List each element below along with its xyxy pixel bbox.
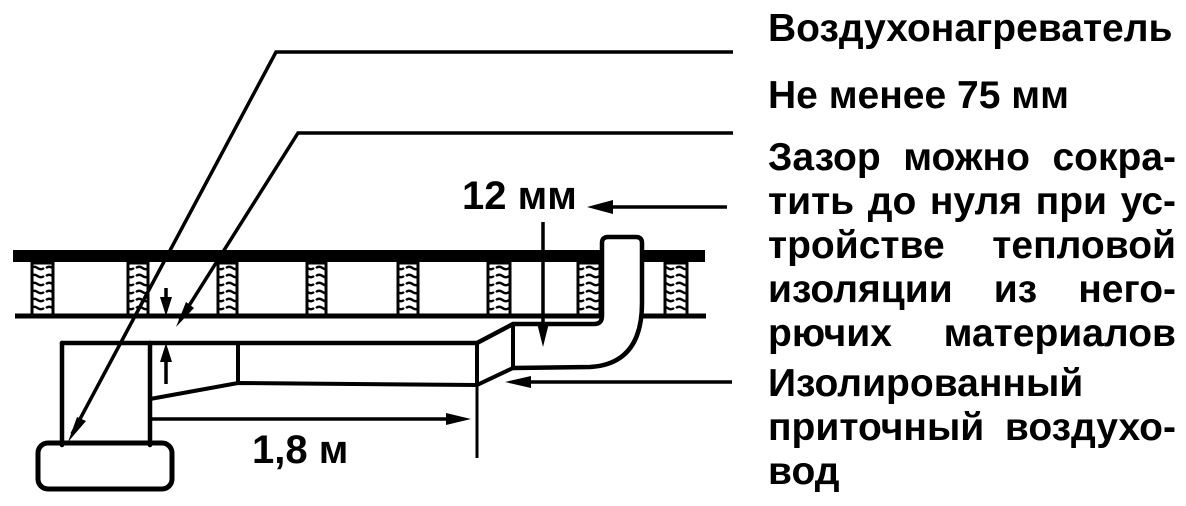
- arrowhead: [68, 417, 86, 442]
- floor-joist: [665, 263, 687, 316]
- label-insulated-duct: Изолированный приточный воздухо- вод: [768, 362, 1176, 494]
- duct-bottom-outline: [150, 368, 513, 399]
- heater-base: [38, 443, 172, 489]
- floor-joist: [32, 263, 53, 316]
- arrowhead: [505, 376, 531, 388]
- label-air-heater: Воздухонагреватель: [768, 7, 1176, 51]
- insulated-duct-line: вод: [768, 450, 1176, 494]
- label-gap-note: Зазор можно сокра- тить до нуля при ус- …: [768, 136, 1176, 356]
- arrowhead: [446, 413, 471, 425]
- gap-note-line: изоляции из него-: [768, 268, 1176, 312]
- gap-note-line: тройстве тепловой: [768, 224, 1176, 268]
- floor-joist: [578, 263, 600, 316]
- floor-joist: [398, 263, 418, 316]
- floor-joists: [32, 263, 687, 316]
- dimension-arrow-75mm: [160, 288, 172, 384]
- gap-note-line: тить до нуля при ус-: [768, 180, 1176, 224]
- floor-joist: [307, 263, 326, 316]
- leader-line-min-gap: [176, 133, 733, 327]
- scanned-diagram-page: 12 мм 1,8 м Воздухонагреватель Не менее …: [0, 0, 1186, 506]
- dimension-arrow-12mm: [537, 222, 549, 347]
- leader-line-gap-note: [587, 200, 727, 214]
- label-min-gap: Не менее 75 мм: [768, 74, 1176, 118]
- gap-note-line: Зазор можно сокра-: [768, 136, 1176, 180]
- arrowhead: [587, 200, 613, 214]
- air-heater-unit: [38, 343, 172, 489]
- floor-joist: [218, 263, 237, 316]
- floor-deck-right: [643, 250, 705, 262]
- arrowhead: [537, 323, 549, 347]
- arrowhead-down: [160, 297, 172, 316]
- insulated-duct-line: Изолированный: [768, 362, 1176, 406]
- leader-line-insulated-duct: [505, 376, 732, 388]
- insulated-duct-line: приточный воздухо-: [768, 406, 1176, 450]
- gap-note-line: рючих материалов: [768, 312, 1176, 356]
- floor-joist: [488, 263, 510, 316]
- floor-deck-left: [13, 250, 601, 262]
- dimension-label-12mm: 12 мм: [462, 176, 577, 216]
- installation-diagram: [0, 0, 760, 506]
- dimension-label-1-8m: 1,8 м: [252, 430, 348, 470]
